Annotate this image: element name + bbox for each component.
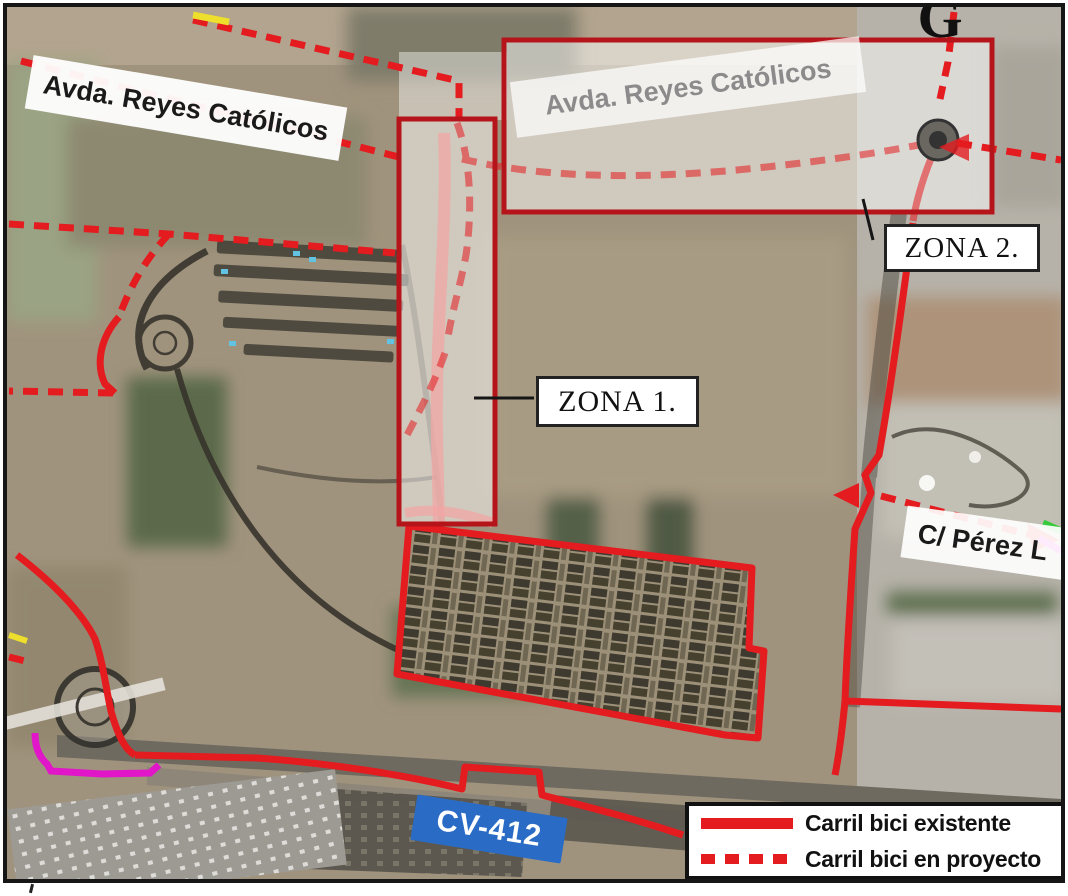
zona2-label: ZONA 2. (884, 224, 1040, 272)
legend: Carril bici existente Carril bici en pro… (685, 802, 1065, 880)
bike-lane-map-figure: Avda. Reyes Católicos Avda. Reyes Católi… (0, 0, 1068, 896)
partial-letter-top-right: G (910, 3, 970, 47)
zona1-label: ZONA 1. (536, 376, 699, 427)
solid-red-line-swatch (701, 818, 793, 829)
legend-item-label: Carril bici existente (805, 810, 1011, 837)
legend-item-label: Carril bici en proyecto (805, 846, 1041, 873)
legend-item-projected: Carril bici en proyecto (701, 846, 1051, 873)
dashed-red-line-swatch (701, 854, 793, 864)
legend-item-existing: Carril bici existente (701, 810, 1051, 837)
stray-mark-bottom-left (29, 884, 34, 893)
map-canvas: Avda. Reyes Católicos Avda. Reyes Católi… (3, 3, 1065, 883)
map-art (7, 7, 1061, 879)
